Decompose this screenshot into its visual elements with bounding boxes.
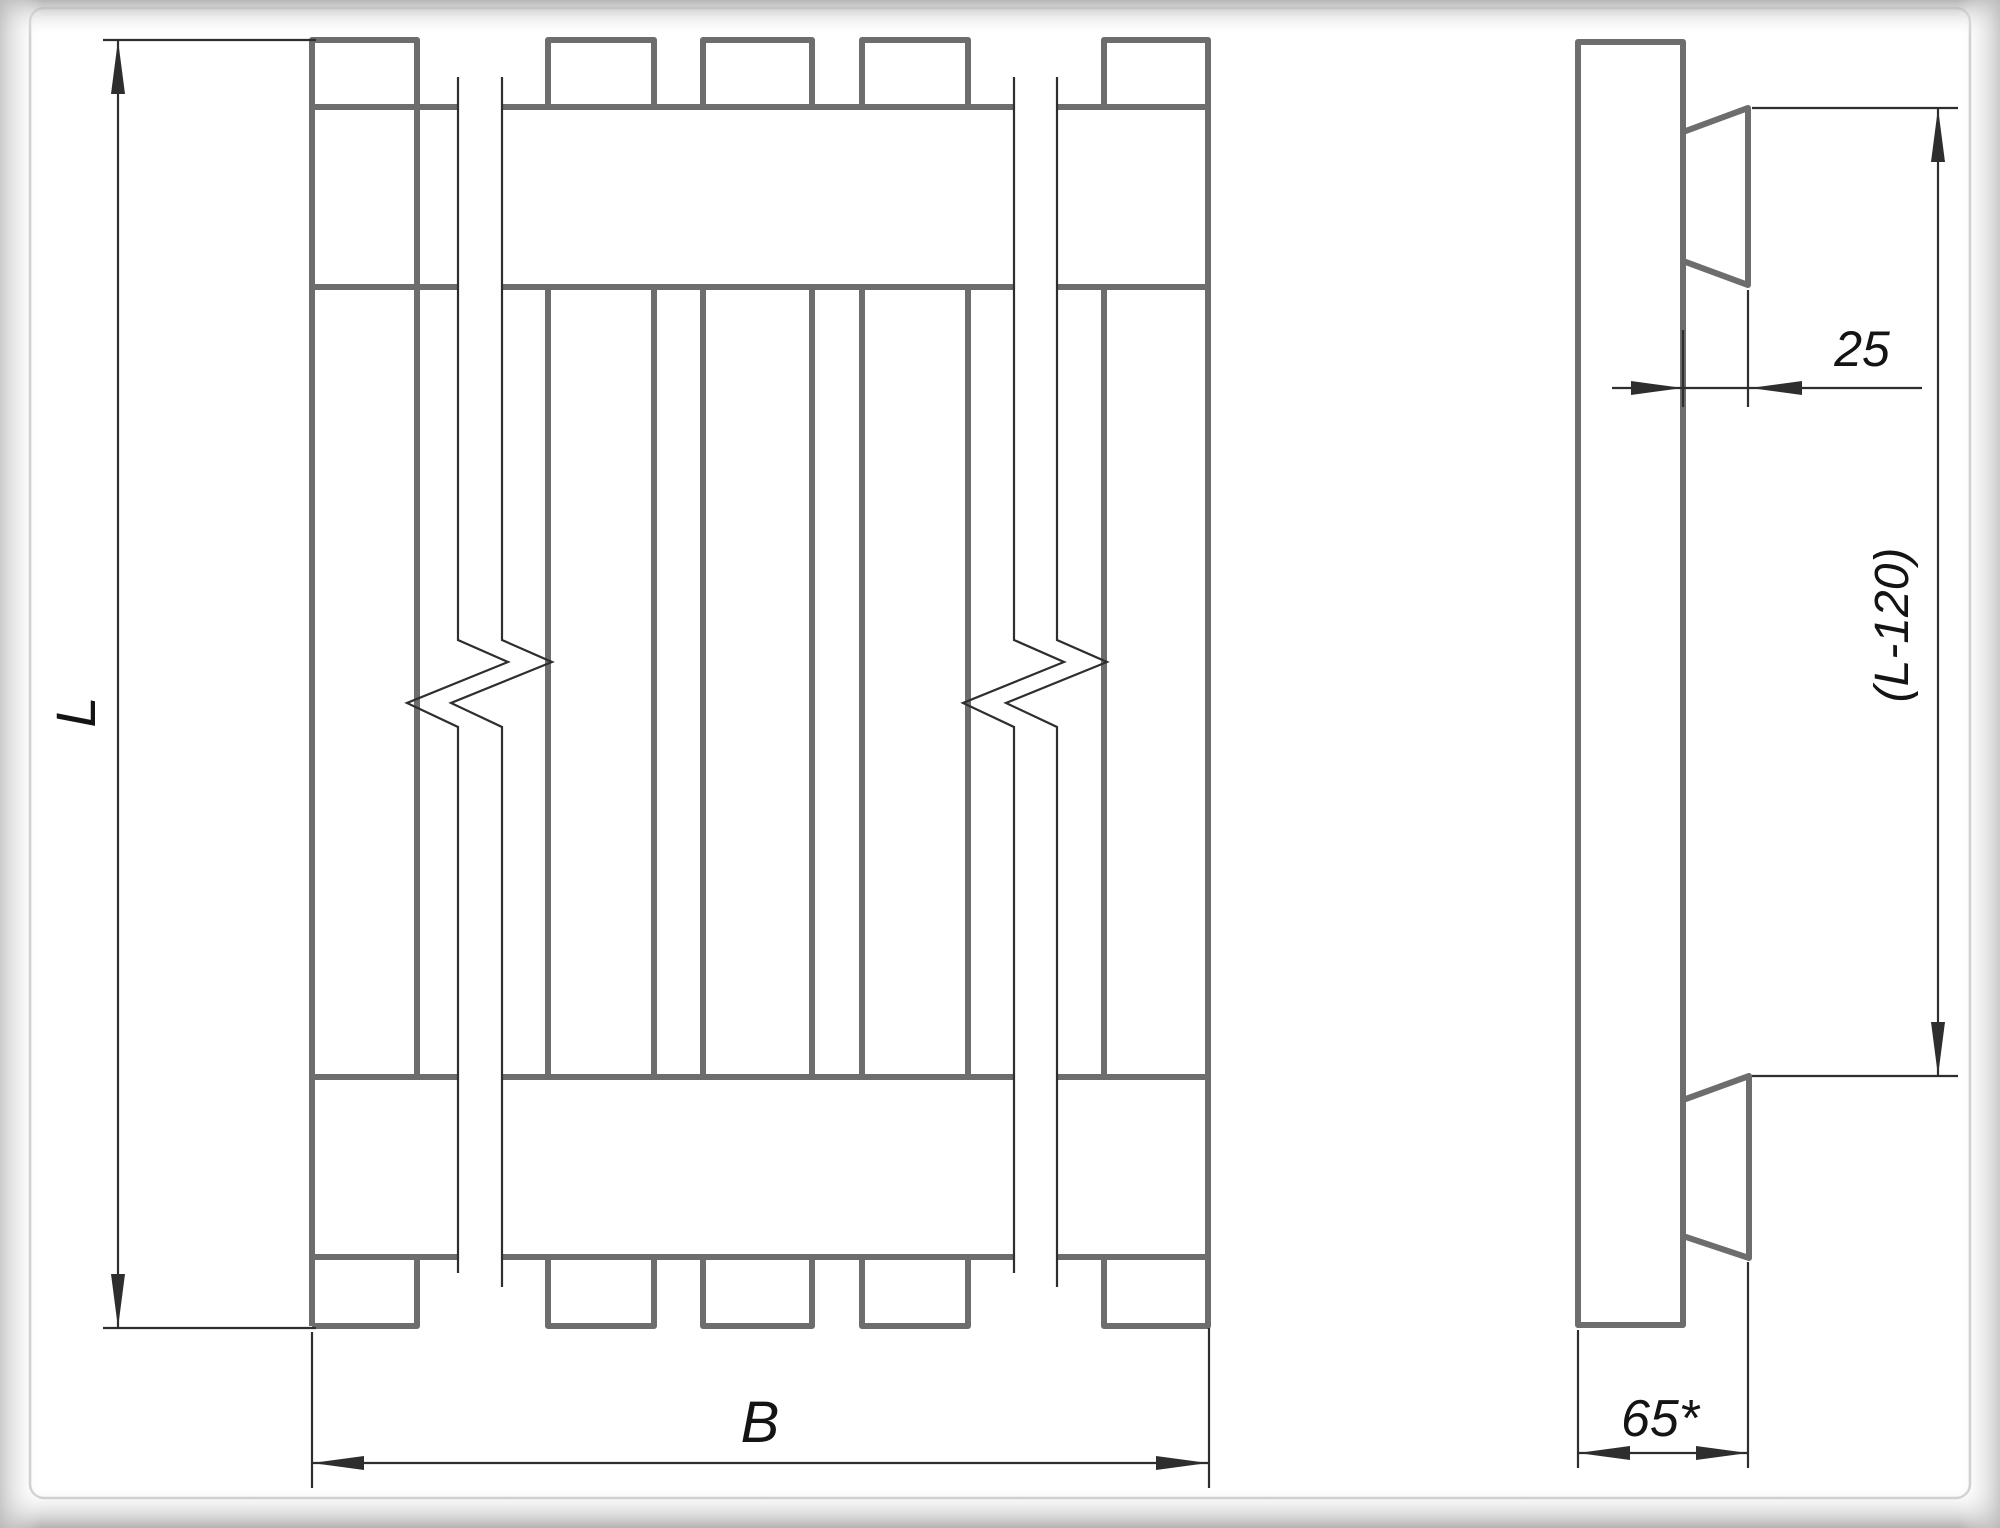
top-cleat: [1683, 108, 1748, 285]
break-line: [1006, 77, 1107, 1287]
arrowhead: [111, 1274, 125, 1328]
arrowhead: [111, 40, 125, 94]
top-batten-edges: [312, 107, 1208, 287]
dimension-length-label: L: [44, 696, 107, 727]
sheet-shadow-bottom: [0, 1486, 2000, 1528]
sheet-shadow-left: [0, 0, 42, 1528]
dimension-width-label: B: [741, 1390, 780, 1455]
break-lines: [407, 77, 1107, 1287]
break-line: [963, 77, 1064, 1273]
board-5: [1104, 40, 1208, 1326]
break-line: [451, 77, 552, 1287]
board-4: [862, 40, 968, 1326]
break-line: [407, 77, 508, 1273]
side-board: [1578, 42, 1683, 1325]
bottom-batten-edges: [312, 1077, 1208, 1257]
dimension-stringer-width-label: 65*: [1621, 1390, 1701, 1448]
board-3: [703, 40, 812, 1326]
board-2: [548, 40, 654, 1326]
arrowhead: [1578, 1446, 1630, 1460]
board-1: [312, 40, 417, 1326]
drawing-sheet: L B 25 (L-120) 65*: [0, 0, 2000, 1528]
arrowhead: [1750, 381, 1802, 395]
dimension-length: L: [44, 40, 316, 1328]
bottom-cleat: [1683, 1076, 1749, 1258]
plan-view: [312, 40, 1208, 1326]
arrowhead: [1931, 108, 1945, 162]
sheet-shadow-right: [1958, 0, 2000, 1528]
arrowhead: [1696, 1446, 1748, 1460]
arrowhead: [1931, 1022, 1945, 1076]
dimension-cleat-offset: (L-120): [1752, 108, 1958, 1076]
arrowhead: [312, 1456, 364, 1470]
sheet-shadow-top: [0, 0, 2000, 36]
dimension-width: B: [312, 1328, 1209, 1488]
dimension-cleat-offset-label: (L-120): [1866, 548, 1919, 703]
side-view: [1578, 42, 1749, 1325]
dimension-cleat-thickness-label: 25: [1833, 321, 1890, 377]
arrowhead: [1156, 1456, 1208, 1470]
